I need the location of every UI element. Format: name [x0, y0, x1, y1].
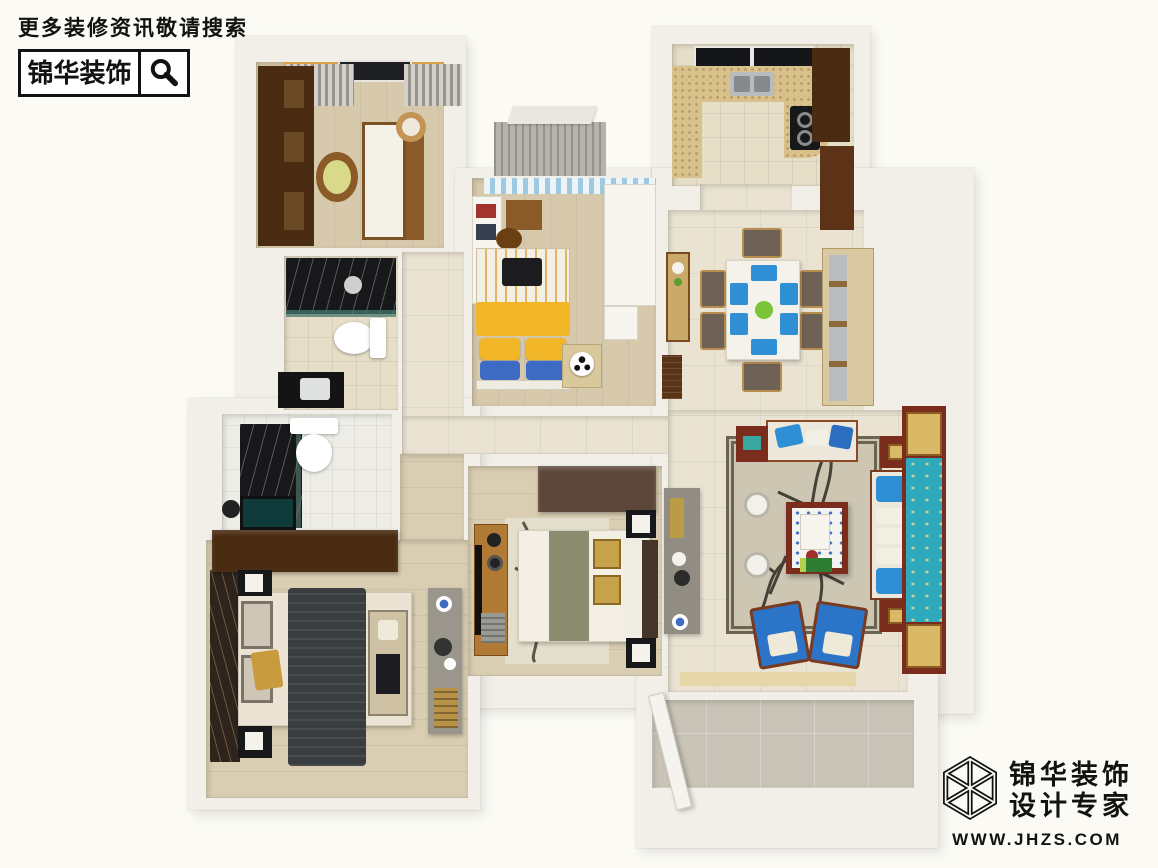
kids-bed-tray: [502, 258, 542, 286]
bench-pillow-blue: [828, 424, 853, 449]
toilet-bowl: [334, 322, 374, 354]
cube-wireframe-logo-icon: [941, 755, 999, 826]
bench-tray: [376, 654, 400, 694]
magnifier-icon: [141, 52, 187, 94]
gold-pillow: [593, 575, 621, 605]
watermark-slogan: 更多装修资讯敬请搜索: [18, 12, 248, 42]
vanity-sink: [300, 378, 330, 400]
placemat: [780, 313, 798, 335]
dining-chair: [700, 312, 726, 350]
patterned-pillow: [241, 601, 273, 649]
table-plant: [755, 301, 773, 319]
console-porcelain-jar: [436, 596, 452, 612]
tv-wall-turquoise-mural: [906, 458, 942, 622]
nightstand-lamp: [245, 732, 263, 750]
hall-console: [664, 488, 700, 634]
kitchen-sink: [730, 72, 774, 96]
floorplan-render: 更多装修资讯敬请搜索 锦华装饰: [0, 0, 1158, 868]
console-decor-gold: [434, 688, 458, 728]
cabinet-mirror-doors: [829, 255, 847, 401]
master-tv-stand: [474, 524, 508, 656]
sofa-seat-cushion: [876, 548, 904, 564]
dining-table: [726, 260, 800, 360]
hall-bench: [662, 355, 682, 399]
second-bedroom-entry-floor: [400, 454, 464, 540]
white-pillows: [623, 537, 643, 635]
kitchen-counter-left: [672, 66, 702, 178]
speaker: [487, 533, 501, 547]
armchair-blue: [749, 600, 811, 670]
study-chair: [316, 152, 358, 202]
bed-end-bench: [368, 610, 408, 716]
sofa-seat-cushion: [876, 508, 904, 524]
website-url: WWW.JHZS.COM: [941, 830, 1133, 850]
shower-glass: [286, 310, 396, 317]
placemat: [751, 265, 777, 281]
bench-pillow-white: [806, 430, 828, 446]
kids-bed-footboard: [476, 380, 570, 390]
watermark-bottom-right: 锦华装饰 设计专家 WWW.JHZS.COM: [941, 755, 1133, 850]
floor-lamp: [222, 500, 240, 518]
tv-wall-gold-panel: [906, 412, 942, 456]
gold-pillow: [250, 649, 283, 691]
console-decor: [434, 638, 452, 656]
toilet-tank: [370, 318, 386, 358]
kids-bed-blanket: [476, 302, 570, 336]
kids-shelf-items: [476, 224, 496, 240]
coffee-table: [786, 502, 848, 574]
kids-wardrobe-return: [604, 306, 638, 340]
study-curtain-right: [404, 64, 462, 106]
bookshelf-cubby: [284, 80, 304, 108]
kitchen-doorway-floor: [700, 184, 792, 212]
master-nightstand: [626, 638, 656, 668]
console-porcelain-jar: [672, 614, 688, 630]
side-table-box: [743, 436, 761, 450]
sink-basin: [754, 76, 770, 92]
armchair-cushion: [767, 630, 798, 657]
bathroom1-vanity: [278, 372, 344, 408]
shower-area: [286, 258, 396, 314]
toilet-tank: [290, 418, 338, 434]
study-desk: [362, 122, 406, 240]
placemat: [751, 339, 777, 355]
study-chair-cushion: [323, 160, 351, 194]
placemat: [730, 283, 748, 305]
kids-shelf-items: [476, 204, 496, 218]
sideboard-vase: [672, 262, 684, 274]
dining-sideboard: [666, 252, 690, 342]
tv-feature-wall-frame: [902, 406, 946, 674]
sofa-seat-cushion: [876, 528, 904, 544]
soccer-ball: [570, 352, 594, 376]
aquarium: [240, 496, 296, 530]
round-stool: [744, 492, 770, 518]
bookshelf-cubby: [284, 132, 304, 162]
bedroom2-headboard-wall: [210, 570, 240, 762]
dining-chair: [700, 270, 726, 308]
bookshelf-cubby: [284, 192, 304, 230]
bedroom2-console: [428, 588, 462, 734]
console-decor-gold: [670, 498, 684, 538]
hallway-floor: [402, 416, 702, 454]
kids-pillow-blue: [526, 361, 566, 380]
round-stool: [744, 552, 770, 578]
console-decor: [672, 552, 686, 566]
bench-pillow: [378, 620, 398, 640]
bedroom2-wardrobe: [212, 530, 398, 572]
placemat: [780, 283, 798, 305]
entry-threshold: [680, 672, 856, 686]
gold-pillow: [593, 539, 621, 569]
nightstand-lamp: [632, 515, 650, 533]
armchair-cushion: [822, 631, 853, 657]
brand-tagline: 设计专家: [1009, 791, 1133, 822]
bed-throw-blanket: [288, 588, 366, 766]
nightstand-lamp: [245, 574, 263, 592]
study-bookshelf: [258, 66, 314, 246]
master-wardrobe: [538, 466, 656, 512]
living-bench: [766, 420, 858, 462]
shower-head: [344, 276, 362, 294]
kids-pillow-yellow: [480, 338, 520, 360]
dining-tall-cabinet: [822, 248, 874, 406]
study-lamp: [396, 112, 426, 142]
green-book: [800, 558, 832, 572]
armchair-blue: [807, 600, 868, 669]
window-mullion: [750, 48, 754, 66]
console-decor: [444, 658, 456, 670]
master-nightstand: [626, 510, 656, 538]
sideboard-flower: [674, 278, 682, 286]
master-bed: [518, 530, 650, 642]
kitchen-tall-cabinet: [812, 48, 850, 142]
tv-wall-gold-panel: [906, 624, 942, 668]
nightstand-lamp: [632, 644, 650, 662]
bed-runner: [549, 531, 589, 641]
sink-basin: [734, 76, 750, 92]
av-equipment: [481, 613, 505, 643]
kids-pillow-blue: [480, 361, 520, 380]
kids-desk: [506, 200, 542, 230]
dining-chair: [742, 362, 782, 392]
toilet-bowl: [296, 434, 332, 472]
ac-outdoor-unit: [494, 122, 606, 176]
stove-burner: [797, 112, 813, 128]
ac-unit-top: [507, 106, 597, 124]
brand-name: 锦华装饰: [21, 52, 138, 94]
watermark-top-left: 更多装修资讯敬请搜索 锦华装饰: [18, 12, 248, 97]
kids-chair: [496, 228, 522, 250]
stove-burner: [797, 130, 813, 146]
dining-chair: [742, 228, 782, 258]
placemat: [730, 313, 748, 335]
brand-name: 锦华装饰: [1009, 760, 1133, 791]
console-decor: [674, 570, 690, 586]
kitchen-fridge-cabinet: [820, 146, 854, 230]
bench-pillow-blue: [774, 424, 804, 449]
bedroom2-nightstand: [238, 726, 272, 758]
kids-pillow-yellow: [526, 338, 566, 360]
balcony-floor: [652, 700, 914, 788]
brand-search-box: 锦华装饰: [18, 49, 190, 97]
living-side-table: [736, 426, 768, 462]
tea-tray: [800, 514, 830, 550]
master-headboard: [642, 540, 658, 638]
kids-wardrobe: [604, 184, 656, 306]
speaker: [487, 555, 503, 571]
bedroom2-nightstand: [238, 570, 272, 596]
